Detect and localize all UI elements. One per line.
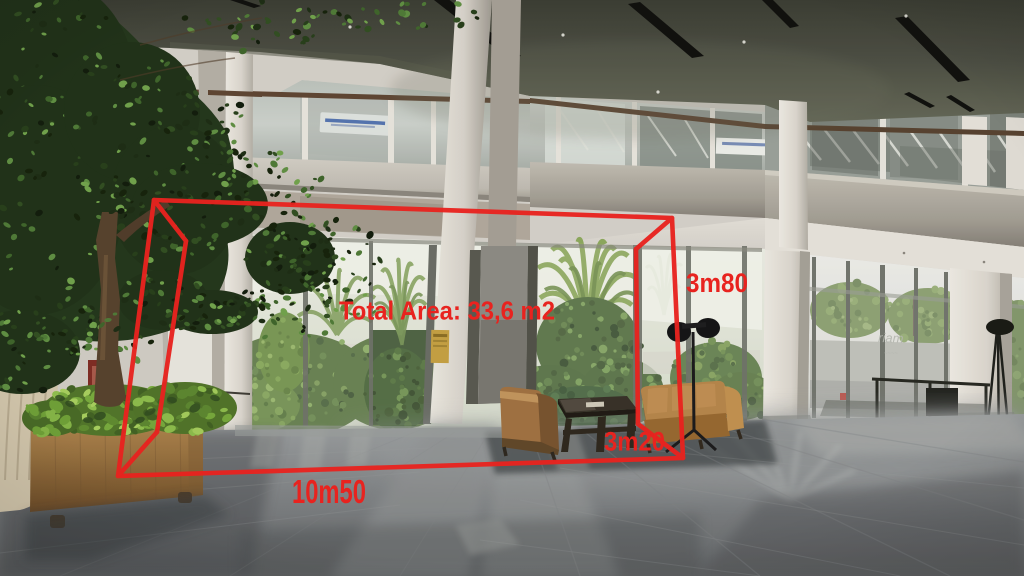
svg-text:3m20: 3m20 — [604, 427, 665, 457]
svg-text:3m80: 3m80 — [686, 268, 748, 298]
svg-text:10m50: 10m50 — [292, 473, 366, 510]
svg-text:Total Area: 33,6 m2: Total Area: 33,6 m2 — [339, 296, 555, 326]
